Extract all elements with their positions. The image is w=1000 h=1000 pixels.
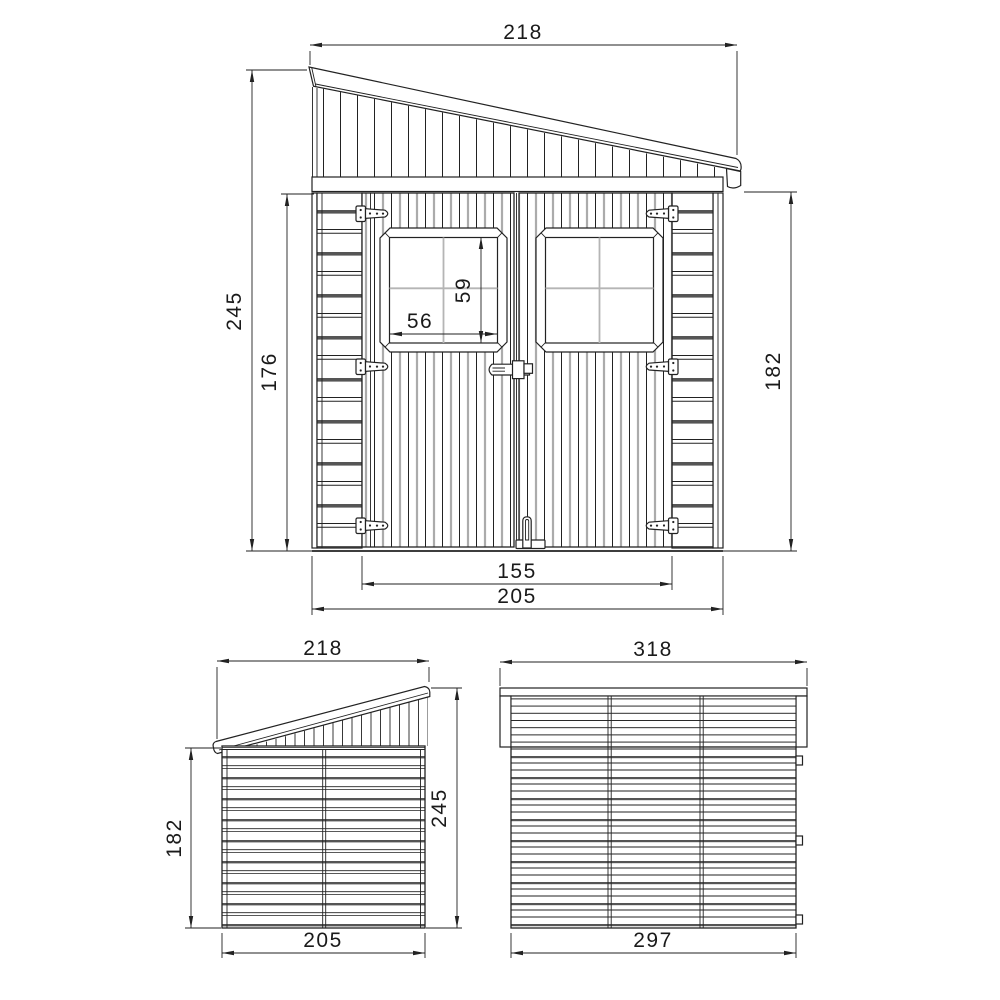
dim-side-high-height: 245 bbox=[426, 688, 462, 928]
side-elevation-view: 218 182 245 205 bbox=[163, 637, 462, 958]
dim-label-side-base-depth: 205 bbox=[303, 929, 343, 952]
front-header-beam bbox=[312, 177, 723, 192]
front-right-window bbox=[536, 228, 663, 352]
front-gable-cladding bbox=[315, 87, 737, 177]
dim-front-total-height: 245 bbox=[223, 70, 307, 551]
rear-roof-left-cap bbox=[500, 696, 511, 747]
front-left-side-wall bbox=[317, 193, 362, 548]
rear-wall-log-end bbox=[796, 915, 803, 924]
dim-label-side-roof-depth: 218 bbox=[303, 637, 343, 660]
rear-wall-log-end bbox=[796, 836, 803, 845]
dim-label-front-total-height: 245 bbox=[223, 291, 246, 331]
dim-label-front-window-height: 59 bbox=[452, 277, 475, 303]
shed-dimension-drawing: 218 245 176 59 56 182 bbox=[0, 0, 1000, 1000]
dim-label-rear-base-length: 297 bbox=[633, 929, 673, 952]
dim-label-front-window-width: 56 bbox=[407, 310, 433, 333]
dim-label-front-opening-height: 176 bbox=[258, 352, 281, 392]
front-left-corner-trim bbox=[312, 193, 317, 548]
dim-front-opening-height: 176 bbox=[258, 194, 314, 551]
technical-drawing-canvas: 218 245 176 59 56 182 bbox=[0, 0, 1000, 1000]
dim-front-eave-height: 182 bbox=[744, 192, 797, 551]
dim-label-side-high-height: 245 bbox=[428, 788, 451, 828]
dim-rear-roof-length: 318 bbox=[500, 638, 807, 686]
front-elevation-view: 218 245 176 59 56 182 bbox=[223, 21, 797, 615]
rear-fascia bbox=[511, 696, 796, 747]
rear-roof-edge bbox=[500, 688, 807, 696]
rear-wall-log-end bbox=[796, 756, 803, 765]
dim-label-front-base-width: 205 bbox=[497, 585, 537, 608]
dim-label-front-door-span: 155 bbox=[497, 560, 537, 583]
dim-side-base-depth: 205 bbox=[222, 929, 425, 958]
dim-label-front-eave-height: 182 bbox=[762, 351, 785, 391]
rear-wall bbox=[511, 747, 796, 928]
dim-label-rear-roof-length: 318 bbox=[633, 638, 673, 661]
front-roof-right-end bbox=[727, 169, 741, 189]
dim-side-low-height: 182 bbox=[163, 748, 221, 928]
side-wall bbox=[222, 746, 425, 928]
dim-label-front-roof-width: 218 bbox=[503, 21, 543, 44]
rear-roof-right-cap bbox=[796, 696, 807, 747]
rear-elevation-view: 318 297 bbox=[500, 638, 807, 958]
dim-rear-base-length: 297 bbox=[511, 929, 796, 958]
dim-label-side-low-height: 182 bbox=[163, 818, 186, 858]
